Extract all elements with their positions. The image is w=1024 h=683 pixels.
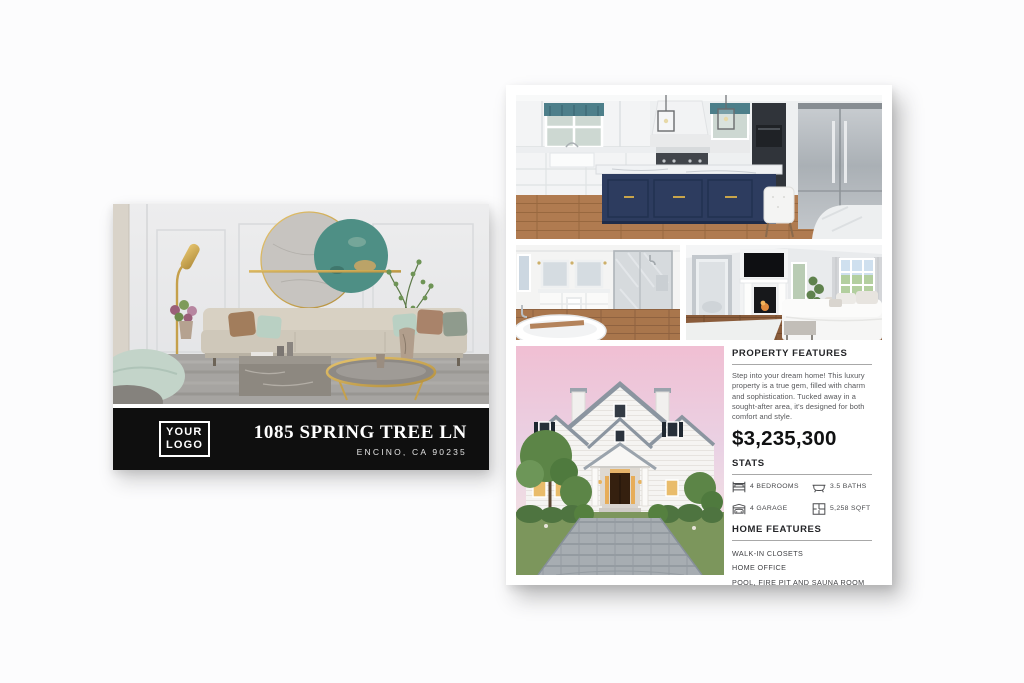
street-address: 1085 SPRING TREE LN: [254, 422, 467, 444]
bathroom-illustration: [516, 245, 680, 340]
bottom-row: PROPERTY FEATURES Step into your dream h…: [516, 346, 882, 575]
property-flyer: PROPERTY FEATURES Step into your dream h…: [506, 85, 892, 585]
exterior-photo: [516, 346, 724, 575]
postcard-address-bar: YOUR LOGO 1085 SPRING TREE LN ENCINO, CA…: [113, 408, 489, 470]
bathroom-photo: [516, 245, 680, 340]
middle-photo-row: [516, 245, 882, 340]
bath-icon: [812, 481, 826, 493]
property-description: Step into your dream home! This luxury p…: [732, 371, 876, 423]
address-block: 1085 SPRING TREE LN ENCINO, CA 90235: [254, 422, 467, 457]
stat-sqft: 5,258 SQFT: [812, 503, 878, 515]
logo-line-2: LOGO: [166, 439, 203, 452]
kitchen-photo: [516, 95, 882, 239]
property-features-heading: PROPERTY FEATURES: [732, 348, 876, 359]
stat-bedrooms: 4 BEDROOMS: [732, 481, 812, 493]
bed-icon: [732, 481, 746, 493]
price: $3,235,300: [732, 427, 876, 451]
home-features-heading: HOME FEATURES: [732, 524, 876, 535]
bedroom-illustration: [686, 245, 882, 340]
logo-placeholder: YOUR LOGO: [159, 421, 210, 457]
garage-icon: [732, 503, 746, 515]
details-panel: PROPERTY FEATURES Step into your dream h…: [730, 346, 882, 575]
exterior-illustration: [516, 346, 724, 575]
section-divider: [732, 364, 872, 365]
stats-grid: 4 BEDROOMS 3.5 BATHS 4 GARAGE: [732, 481, 876, 515]
city-state-zip: ENCINO, CA 90235: [254, 447, 467, 457]
stat-label: 4 BEDROOMS: [750, 483, 799, 490]
floorplan-icon: [812, 503, 826, 515]
home-features-list: WALK-IN CLOSETS HOME OFFICE POOL, FIRE P…: [732, 547, 876, 590]
stats-heading: STATS: [732, 458, 876, 469]
kitchen-illustration: [516, 95, 882, 239]
mockup-background: YOUR LOGO 1085 SPRING TREE LN ENCINO, CA…: [0, 0, 1024, 683]
living-room-illustration: [113, 204, 489, 404]
stat-baths: 3.5 BATHS: [812, 481, 878, 493]
postcard: YOUR LOGO 1085 SPRING TREE LN ENCINO, CA…: [113, 204, 489, 470]
stat-label: 5,258 SQFT: [830, 505, 871, 512]
stat-garage: 4 GARAGE: [732, 503, 812, 515]
logo-line-1: YOUR: [166, 426, 203, 439]
home-feature-item: HOME OFFICE: [732, 561, 876, 575]
section-divider: [732, 474, 872, 475]
home-feature-item: POOL, FIRE PIT AND SAUNA ROOM: [732, 576, 876, 590]
living-room-photo: [113, 204, 489, 404]
stat-label: 4 GARAGE: [750, 505, 788, 512]
home-feature-item: WALK-IN CLOSETS: [732, 547, 876, 561]
section-divider: [732, 540, 872, 541]
stat-label: 3.5 BATHS: [830, 483, 867, 490]
bedroom-photo: [686, 245, 882, 340]
